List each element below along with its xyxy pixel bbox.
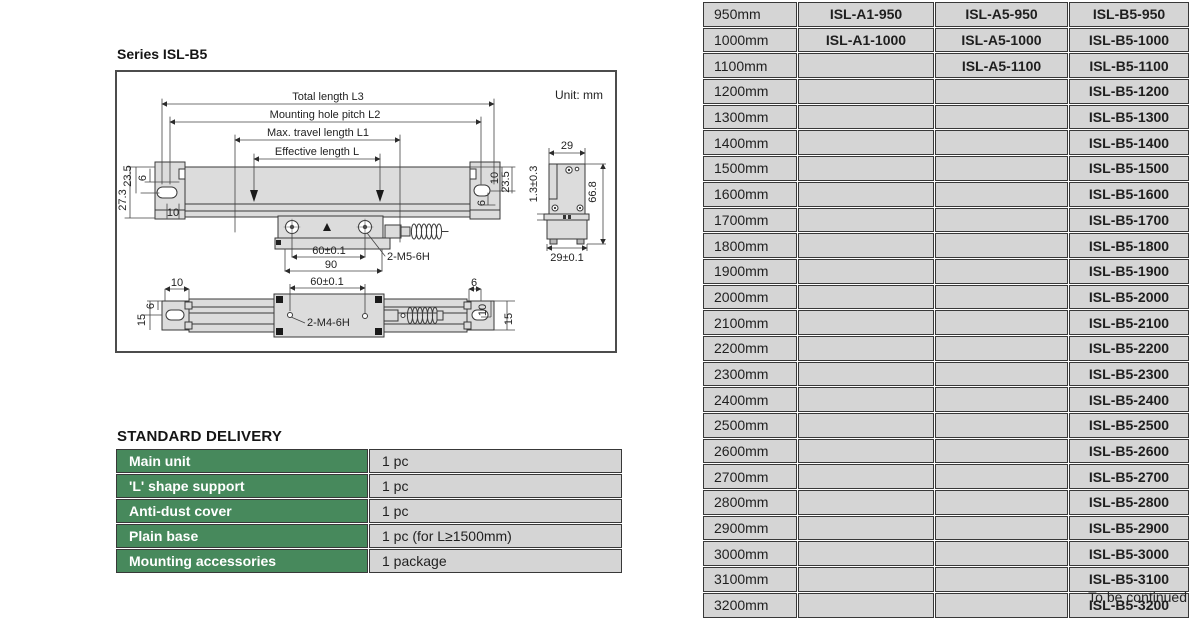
length-cell: 2300mm (703, 362, 797, 387)
model-b5-cell: ISL-B5-1200 (1069, 79, 1189, 104)
model-a1-cell (798, 593, 934, 618)
length-cell: 1200mm (703, 79, 797, 104)
model-a1-cell (798, 541, 934, 566)
model-b5-cell: ISL-B5-2000 (1069, 285, 1189, 310)
length-cell: 1600mm (703, 182, 797, 207)
model-a5-cell (935, 130, 1068, 155)
scale-body (185, 167, 470, 217)
model-a1-cell: ISL-A1-1000 (798, 28, 934, 53)
model-b5-cell: ISL-B5-2400 (1069, 387, 1189, 412)
dimension-drawing: Total length L3 Mounting hole pitch L2 M… (117, 72, 615, 351)
model-a5-cell: ISL-A5-1000 (935, 28, 1068, 53)
model-b5-cell: ISL-B5-1400 (1069, 130, 1189, 155)
thread-label-m5: 2-M5-6H (387, 251, 430, 263)
dim-10-top-left: 10 (171, 277, 183, 289)
model-a1-cell (798, 336, 934, 361)
delivery-row: Anti-dust cover1 pc (116, 499, 622, 523)
model-b5-cell: ISL-B5-1300 (1069, 105, 1189, 130)
model-a5-cell (935, 516, 1068, 541)
length-cell: 1400mm (703, 130, 797, 155)
table-row: 1700mmISL-B5-1700 (703, 208, 1189, 233)
length-cell: 2200mm (703, 336, 797, 361)
dim-mounting-pitch: Mounting hole pitch L2 (270, 109, 381, 121)
table-row: 2000mmISL-B5-2000 (703, 285, 1189, 310)
model-b5-cell: ISL-B5-1000 (1069, 28, 1189, 53)
thread-label-m4: 2-M4-6H (307, 317, 350, 329)
length-cell: 2000mm (703, 285, 797, 310)
model-b5-cell: ISL-B5-2500 (1069, 413, 1189, 438)
length-cell: 3100mm (703, 567, 797, 592)
table-row: 2500mmISL-B5-2500 (703, 413, 1189, 438)
delivery-item-cell: Plain base (116, 524, 368, 548)
length-cell: 1900mm (703, 259, 797, 284)
delivery-qty-cell: 1 pc (369, 499, 622, 523)
model-a5-cell (935, 567, 1068, 592)
model-b5-cell: ISL-B5-2200 (1069, 336, 1189, 361)
model-b5-cell: ISL-B5-2800 (1069, 490, 1189, 515)
length-cell: 3200mm (703, 593, 797, 618)
table-row: 2200mmISL-B5-2200 (703, 336, 1189, 361)
model-b5-cell: ISL-B5-2300 (1069, 362, 1189, 387)
model-b5-cell: ISL-B5-2600 (1069, 439, 1189, 464)
model-a5-cell (935, 310, 1068, 335)
model-a5-cell (935, 439, 1068, 464)
model-a1-cell (798, 259, 934, 284)
model-b5-cell: ISL-B5-1700 (1069, 208, 1189, 233)
length-cell: 1300mm (703, 105, 797, 130)
dim-15-top-left: 15 (136, 314, 148, 326)
length-cell: 2700mm (703, 464, 797, 489)
model-a5-cell (935, 387, 1068, 412)
length-cell: 2600mm (703, 439, 797, 464)
length-cell: 1800mm (703, 233, 797, 258)
model-b5-cell: ISL-B5-1100 (1069, 53, 1189, 78)
dim-27-3-left: 27.3 (117, 189, 129, 210)
delivery-row: Main unit1 pc (116, 449, 622, 473)
model-a1-cell: ISL-A1-950 (798, 2, 934, 27)
model-a5-cell (935, 413, 1068, 438)
model-a5-cell (935, 464, 1068, 489)
model-b5-cell: ISL-B5-1500 (1069, 156, 1189, 181)
table-row: 1800mmISL-B5-1800 (703, 233, 1189, 258)
delivery-qty-cell: 1 pc (369, 449, 622, 473)
delivery-item-cell: Anti-dust cover (116, 499, 368, 523)
model-a1-cell (798, 130, 934, 155)
delivery-qty-cell: 1 pc (for L≥1500mm) (369, 524, 622, 548)
dim-1-3-gap: 1.3±0.3 (528, 166, 540, 203)
end-view: Unit: mm (528, 88, 606, 264)
dim-total-length: Total length L3 (292, 91, 364, 103)
table-row: 2900mmISL-B5-2900 (703, 516, 1189, 541)
model-a1-cell (798, 105, 934, 130)
table-row: 1900mmISL-B5-1900 (703, 259, 1189, 284)
model-a1-cell (798, 439, 934, 464)
dim-90-side: 90 (325, 259, 337, 271)
table-row: 1200mmISL-B5-1200 (703, 79, 1189, 104)
dim-6-top-right: 6 (471, 277, 477, 289)
model-a5-cell (935, 336, 1068, 361)
model-a5-cell (935, 156, 1068, 181)
end-view-junction-plate (544, 214, 589, 220)
dim-6-top-left: 6 (145, 303, 157, 309)
dim-6-right: 6 (476, 200, 488, 206)
model-a5-cell (935, 541, 1068, 566)
length-cell: 1000mm (703, 28, 797, 53)
length-cell: 2400mm (703, 387, 797, 412)
cable-spring (385, 224, 448, 239)
table-row: 3000mmISL-B5-3000 (703, 541, 1189, 566)
model-a1-cell (798, 310, 934, 335)
model-a1-cell (798, 516, 934, 541)
table-row: 2800mmISL-B5-2800 (703, 490, 1189, 515)
model-b5-cell: ISL-B5-2700 (1069, 464, 1189, 489)
dim-23-5-right: 23.5 (500, 171, 512, 192)
model-b5-cell: ISL-B5-3000 (1069, 541, 1189, 566)
dimension-drawing-frame: Total length L3 Mounting hole pitch L2 M… (115, 70, 617, 353)
model-a1-cell (798, 490, 934, 515)
model-a1-cell (798, 79, 934, 104)
model-b5-cell: ISL-B5-1900 (1069, 259, 1189, 284)
model-a5-cell (935, 105, 1068, 130)
table-row: 2400mmISL-B5-2400 (703, 387, 1189, 412)
delivery-item-cell: Mounting accessories (116, 549, 368, 573)
table-row: 1500mmISL-B5-1500 (703, 156, 1189, 181)
dim-66-8-height: 66.8 (587, 181, 599, 202)
to-be-continued-note: To be continued (1088, 589, 1187, 605)
table-row: 2700mmISL-B5-2700 (703, 464, 1189, 489)
table-row: 2100mmISL-B5-2100 (703, 310, 1189, 335)
model-a5-cell (935, 79, 1068, 104)
model-a5-cell (935, 490, 1068, 515)
right-end-bracket (470, 162, 500, 219)
model-a5-cell: ISL-A5-950 (935, 2, 1068, 27)
model-a1-cell (798, 387, 934, 412)
dim-60-side: 60±0.1 (312, 245, 346, 257)
table-row: 2300mmISL-B5-2300 (703, 362, 1189, 387)
model-a1-cell (798, 567, 934, 592)
table-row: 950mmISL-A1-950ISL-A5-950ISL-B5-950 (703, 2, 1189, 27)
table-row: 2600mmISL-B5-2600 (703, 439, 1189, 464)
model-a1-cell (798, 233, 934, 258)
dim-6-left: 6 (137, 175, 149, 181)
delivery-item-cell: 'L' shape support (116, 474, 368, 498)
model-a5-cell (935, 259, 1068, 284)
dim-max-travel: Max. travel length L1 (267, 127, 369, 139)
length-cell: 3000mm (703, 541, 797, 566)
length-cell: 2900mm (703, 516, 797, 541)
model-a5-cell (935, 593, 1068, 618)
dim-29-base: 29±0.1 (550, 252, 584, 264)
model-a5-cell (935, 182, 1068, 207)
length-cell: 1500mm (703, 156, 797, 181)
delivery-qty-cell: 1 package (369, 549, 622, 573)
model-a5-cell: ISL-A5-1100 (935, 53, 1068, 78)
page-title: Series ISL-B5 (117, 46, 207, 62)
model-a5-cell (935, 208, 1068, 233)
table-row: 1300mmISL-B5-1300 (703, 105, 1189, 130)
table-row: 1000mmISL-A1-1000ISL-A5-1000ISL-B5-1000 (703, 28, 1189, 53)
length-cell: 950mm (703, 2, 797, 27)
table-row: 1600mmISL-B5-1600 (703, 182, 1189, 207)
model-a1-cell (798, 53, 934, 78)
model-a1-cell (798, 156, 934, 181)
delivery-row: 'L' shape support1 pc (116, 474, 622, 498)
length-cell: 2100mm (703, 310, 797, 335)
dim-29-top: 29 (561, 140, 573, 152)
model-b5-cell: ISL-B5-950 (1069, 2, 1189, 27)
dim-10-top-right: 10 (477, 304, 489, 316)
datasheet-page: Series ISL-B5 (0, 0, 1201, 632)
model-a1-cell (798, 413, 934, 438)
model-a1-cell (798, 182, 934, 207)
dim-23-5-left: 23.5 (122, 165, 134, 186)
model-number-table: 950mmISL-A1-950ISL-A5-950ISL-B5-9501000m… (702, 1, 1190, 619)
end-view-base (547, 220, 587, 239)
dim-effective-length: Effective length L (275, 146, 359, 158)
top-left-bracket (162, 301, 192, 330)
delivery-item-cell: Main unit (116, 449, 368, 473)
unit-note: Unit: mm (555, 88, 603, 102)
delivery-row: Mounting accessories1 package (116, 549, 622, 573)
model-a5-cell (935, 285, 1068, 310)
length-cell: 2500mm (703, 413, 797, 438)
standard-delivery-table: Main unit1 pc'L' shape support1 pcAnti-d… (115, 448, 623, 574)
side-view: Total length L3 Mounting hole pitch L2 M… (117, 91, 515, 271)
dim-60-top: 60±0.1 (310, 276, 344, 288)
standard-delivery-title: STANDARD DELIVERY (117, 428, 282, 445)
model-a1-cell (798, 285, 934, 310)
model-b5-cell: ISL-B5-1600 (1069, 182, 1189, 207)
model-a1-cell (798, 464, 934, 489)
model-a5-cell (935, 233, 1068, 258)
dim-15-top-right: 15 (503, 313, 515, 325)
model-a1-cell (798, 208, 934, 233)
length-cell: 2800mm (703, 490, 797, 515)
top-mounting-plate (274, 294, 384, 337)
length-cell: 1100mm (703, 53, 797, 78)
model-a5-cell (935, 362, 1068, 387)
model-b5-cell: ISL-B5-2900 (1069, 516, 1189, 541)
table-row: 1100mmISL-A5-1100ISL-B5-1100 (703, 53, 1189, 78)
delivery-qty-cell: 1 pc (369, 474, 622, 498)
table-row: 1400mmISL-B5-1400 (703, 130, 1189, 155)
top-view: 60±0.1 2-M4-6H 10 6 15 6 10 15 (136, 276, 515, 337)
length-cell: 1700mm (703, 208, 797, 233)
model-b5-cell: ISL-B5-2100 (1069, 310, 1189, 335)
delivery-row: Plain base1 pc (for L≥1500mm) (116, 524, 622, 548)
model-a1-cell (798, 362, 934, 387)
model-b5-cell: ISL-B5-1800 (1069, 233, 1189, 258)
dim-10-left: 10 (167, 207, 179, 219)
